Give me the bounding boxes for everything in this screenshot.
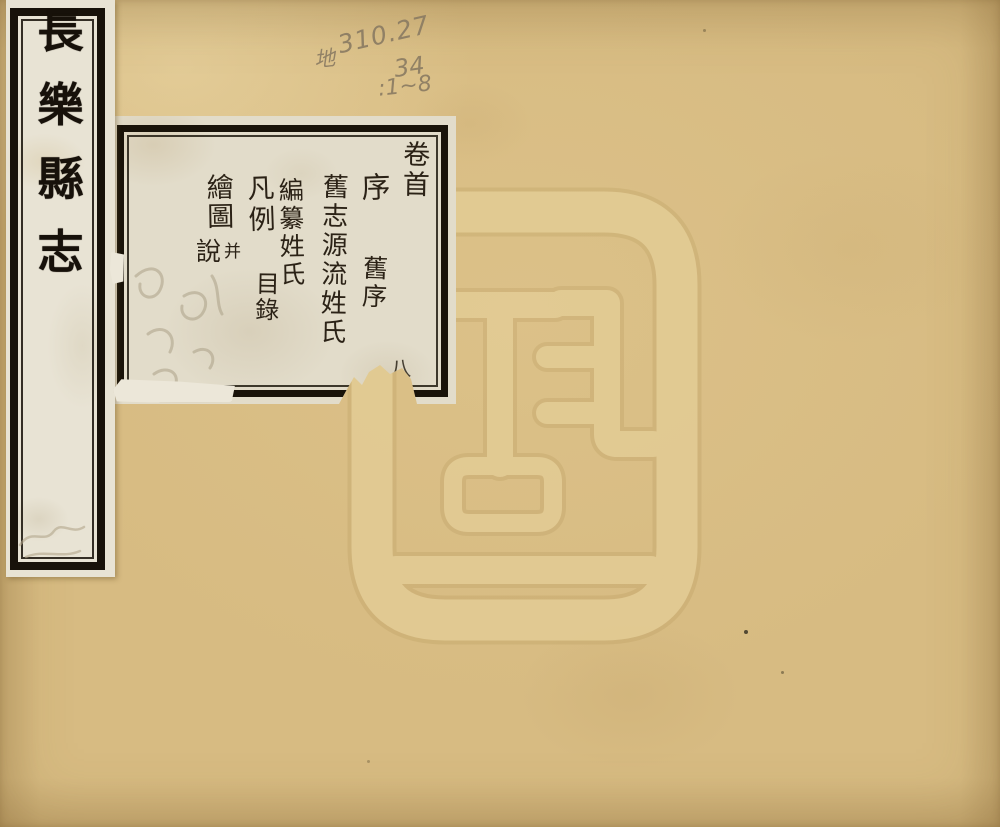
label-entry-jiuxu: 舊序	[360, 255, 387, 312]
contents-label: 卷首 序 舊序 舊志源流姓氏 編纂姓氏 凡例 目錄 繪圖 并 說 八	[112, 116, 456, 404]
offset-ink-ghost-marks	[14, 505, 106, 565]
label-entry-bingshuo: 并 說	[196, 232, 241, 268]
set-off-text-ghost-marks	[124, 256, 244, 396]
call-number-volumes: :1~8	[377, 71, 433, 101]
label-entry-bianzuan-xingshi: 編纂姓氏	[277, 177, 304, 289]
label-char-shuo: 說	[196, 232, 221, 268]
label-entry-huitu: 繪圖	[203, 173, 231, 231]
torn-paper-tab	[110, 252, 124, 284]
title-char-4: 志	[38, 229, 84, 277]
foxing-speck	[744, 630, 748, 634]
book-title: 長 樂 縣 志	[6, 0, 115, 577]
title-strip: 長 樂 縣 志	[6, 0, 115, 577]
label-entry-fanli: 凡例	[244, 174, 273, 237]
foxing-speck	[367, 760, 370, 763]
title-char-2: 樂	[38, 82, 84, 130]
label-entry-mulu: 目錄	[253, 271, 278, 323]
label-char-bing: 并	[224, 237, 241, 262]
call-number-prefix: 地	[312, 42, 336, 74]
title-char-1: 長	[38, 8, 84, 56]
book-cover: 長 樂 縣 志 卷首 序 舊序 舊志源流姓氏 編纂姓氏 凡例 目錄 繪圖 并 說…	[0, 0, 1000, 827]
title-char-3: 縣	[38, 156, 84, 204]
label-entry-xu: 序	[359, 172, 389, 202]
foxing-speck	[781, 671, 784, 674]
label-entry-jiuzhi-yuanliu-xingshi: 舊志源流姓氏	[317, 173, 346, 347]
foxing-speck	[703, 29, 706, 32]
call-number-annotation: 地 310.27 34 :1~8	[306, 22, 481, 110]
label-entry-juanshou: 卷首	[399, 140, 427, 200]
